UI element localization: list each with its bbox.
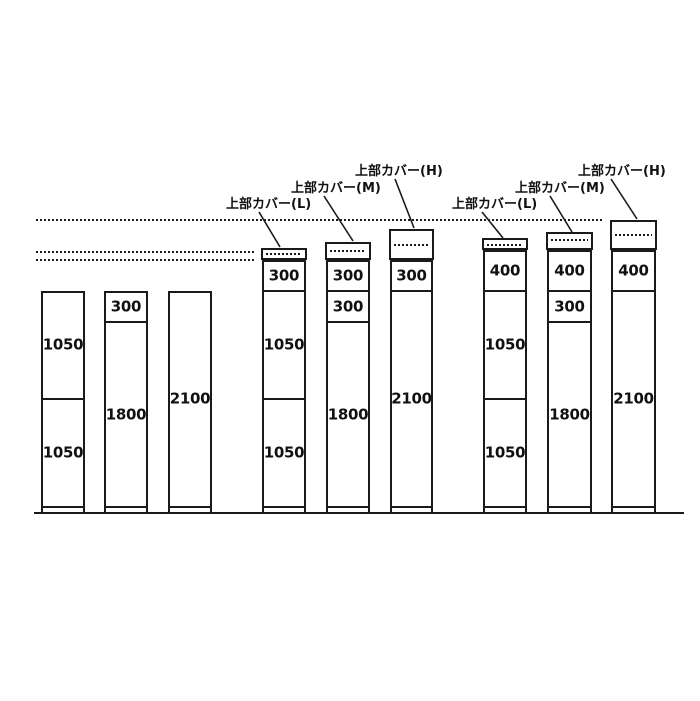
section-height-value: 400 — [547, 263, 592, 278]
top-cover-box — [261, 248, 307, 260]
section-divider — [43, 398, 83, 400]
section-height-value: 400 — [483, 263, 527, 278]
cabinet-top-level-dotted-line — [36, 259, 254, 261]
section-divider — [549, 321, 590, 323]
top-cover-label: 上部カバー(M) — [291, 182, 381, 195]
section-height-value: 300 — [326, 268, 370, 283]
top-cover-label: 上部カバー(L) — [226, 198, 311, 211]
section-divider — [549, 290, 590, 292]
top-cover-box — [482, 238, 528, 250]
section-height-value: 1800 — [104, 407, 148, 422]
section-divider — [485, 398, 525, 400]
cover-edge-dotted-line — [330, 250, 366, 252]
section-height-value: 1050 — [41, 338, 85, 353]
leader-line — [550, 196, 572, 232]
cover-edge-dotted-line — [615, 234, 652, 236]
section-divider — [485, 290, 525, 292]
section-height-value: 400 — [611, 263, 656, 278]
top-cover-label: 上部カバー(H) — [355, 165, 443, 178]
section-height-value: 1050 — [41, 446, 85, 461]
cabinet-bar — [104, 291, 148, 514]
section-height-value: 1050 — [483, 446, 527, 461]
top-cover-label: 上部カバー(M) — [515, 182, 605, 195]
top-cover-box — [325, 242, 371, 260]
upper-height-level-dotted-line — [36, 219, 603, 221]
section-divider — [328, 321, 368, 323]
section-height-value: 300 — [262, 268, 306, 283]
section-height-value: 2100 — [168, 392, 212, 407]
cover-top-level-dotted-line — [36, 251, 254, 253]
section-height-value: 1800 — [326, 407, 370, 422]
top-cover-box — [610, 220, 657, 250]
section-divider — [264, 398, 304, 400]
cover-edge-dotted-line — [394, 244, 429, 246]
cabinet-bar — [41, 291, 85, 514]
section-divider — [392, 506, 431, 508]
top-cover-label: 上部カバー(H) — [578, 165, 666, 178]
section-height-value: 300 — [326, 299, 370, 314]
section-divider — [485, 506, 525, 508]
top-cover-box — [546, 232, 593, 250]
cover-edge-dotted-line — [266, 253, 302, 255]
section-divider — [328, 506, 368, 508]
ground-line — [34, 512, 684, 514]
leader-line — [482, 212, 503, 238]
cabinet-bar — [262, 260, 306, 514]
section-divider — [106, 321, 146, 323]
cover-edge-dotted-line — [487, 244, 523, 246]
top-cover-label: 上部カバー(L) — [452, 198, 537, 211]
section-height-value: 300 — [390, 268, 433, 283]
section-divider — [328, 290, 368, 292]
leader-line — [259, 212, 280, 247]
section-divider — [392, 290, 431, 292]
section-divider — [264, 290, 304, 292]
section-divider — [170, 506, 210, 508]
section-height-value: 1800 — [547, 407, 592, 422]
section-height-value: 300 — [547, 299, 592, 314]
section-height-value: 2100 — [611, 392, 656, 407]
leader-line — [611, 179, 637, 219]
cabinet-height-diagram: 上部カバー(L)上部カバー(M)上部カバー(H)上部カバー(L)上部カバー(M)… — [0, 0, 700, 701]
section-divider — [264, 506, 304, 508]
cover-edge-dotted-line — [551, 239, 588, 241]
section-divider — [613, 506, 654, 508]
section-height-value: 2100 — [390, 392, 433, 407]
top-cover-box — [389, 229, 434, 260]
section-divider — [43, 506, 83, 508]
section-height-value: 1050 — [262, 446, 306, 461]
cabinet-bar — [390, 260, 433, 514]
section-divider — [106, 506, 146, 508]
section-height-value: 1050 — [262, 338, 306, 353]
section-divider — [549, 506, 590, 508]
section-height-value: 1050 — [483, 338, 527, 353]
section-divider — [613, 290, 654, 292]
section-height-value: 300 — [104, 299, 148, 314]
